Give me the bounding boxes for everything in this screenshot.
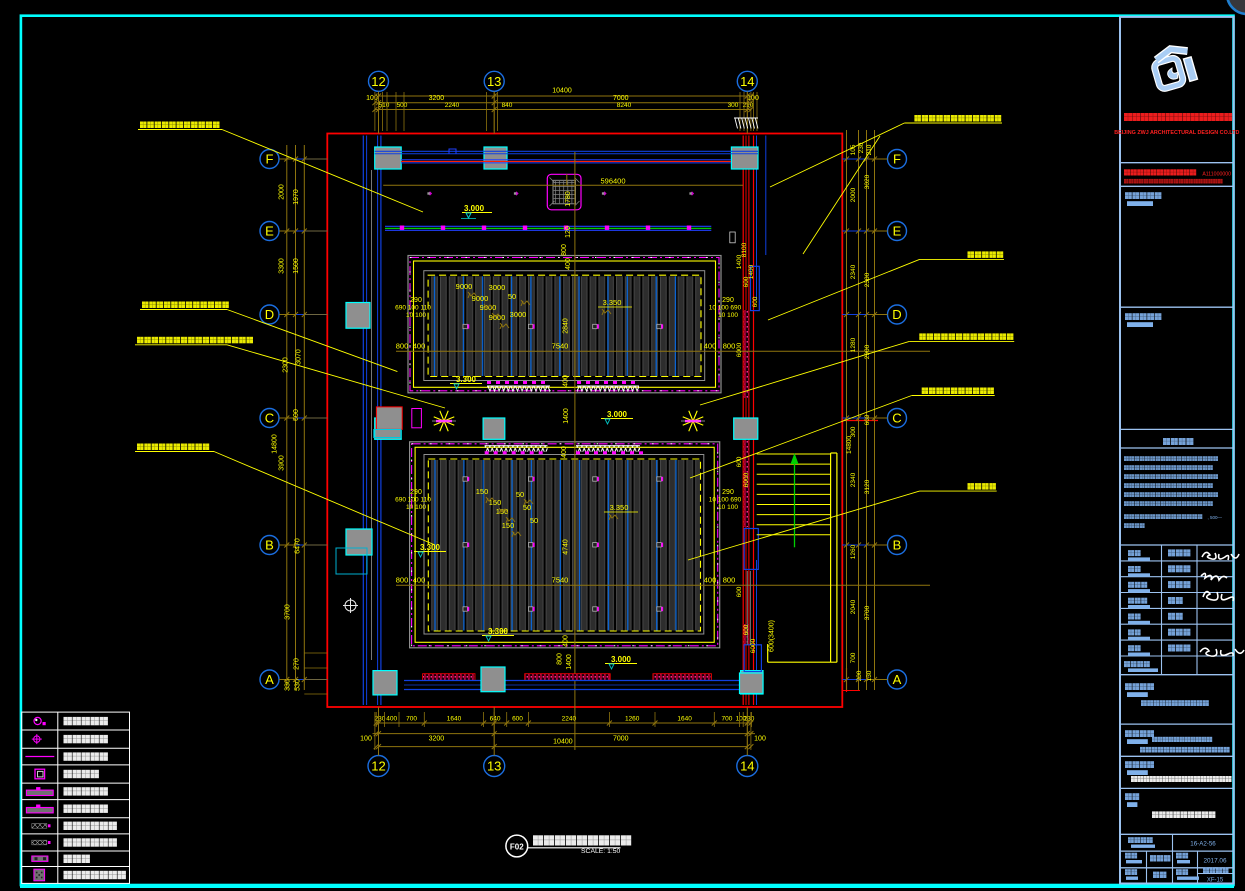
svg-text:10 100: 10 100: [406, 312, 426, 319]
svg-text:600: 600: [512, 716, 523, 723]
svg-text:8100: 8100: [741, 242, 748, 257]
svg-text:50: 50: [508, 292, 516, 301]
svg-text:3120: 3120: [864, 479, 871, 494]
svg-text:, 500—: , 500—: [1207, 515, 1222, 520]
svg-text:3.000: 3.000: [464, 204, 485, 213]
svg-text:3700: 3700: [285, 604, 292, 620]
svg-text:1400: 1400: [566, 654, 573, 670]
svg-text:14800: 14800: [846, 436, 853, 454]
svg-text:700: 700: [850, 652, 857, 663]
svg-text:9000: 9000: [456, 282, 473, 291]
svg-text:3.350: 3.350: [610, 503, 629, 512]
svg-text:1260: 1260: [850, 544, 857, 559]
svg-text:4740: 4740: [563, 539, 570, 555]
svg-text:210: 210: [866, 144, 873, 155]
svg-text:12: 12: [371, 74, 385, 89]
svg-text:2240: 2240: [445, 102, 460, 109]
svg-text:8240: 8240: [617, 102, 632, 109]
svg-text:300: 300: [850, 426, 857, 437]
svg-text:400: 400: [563, 635, 570, 647]
svg-text:100: 100: [754, 736, 766, 743]
svg-text:7540: 7540: [552, 342, 569, 351]
svg-text:1500: 1500: [293, 258, 300, 274]
svg-text:14: 14: [740, 74, 754, 89]
svg-text:400: 400: [565, 258, 572, 270]
svg-text:270: 270: [294, 658, 301, 670]
svg-text:500: 500: [397, 102, 408, 109]
svg-text:D: D: [265, 307, 274, 322]
svg-text:10 100 690: 10 100 690: [709, 497, 742, 504]
svg-text:600: 600: [752, 296, 759, 307]
svg-text:3200: 3200: [429, 736, 445, 743]
svg-text:F: F: [893, 152, 901, 167]
svg-text:6000: 6000: [743, 472, 750, 487]
svg-text:F: F: [266, 152, 274, 167]
svg-text:690 100 110: 690 100 110: [395, 305, 431, 312]
svg-text:1640: 1640: [447, 716, 462, 723]
svg-text:2900: 2900: [864, 344, 871, 359]
svg-text:596400: 596400: [601, 177, 626, 186]
svg-text:2000: 2000: [850, 187, 857, 202]
svg-text:290: 290: [410, 489, 422, 496]
svg-text:200: 200: [856, 670, 863, 681]
svg-text:7000: 7000: [613, 736, 629, 743]
svg-text:3.000: 3.000: [607, 410, 628, 419]
svg-text:690 100 110: 690 100 110: [395, 497, 431, 504]
svg-text:3300: 3300: [279, 258, 286, 274]
svg-text:2340: 2340: [850, 472, 857, 487]
svg-text:3.000: 3.000: [611, 655, 632, 664]
svg-text:6000: 6000: [736, 342, 743, 357]
svg-text:2017.06: 2017.06: [1203, 858, 1227, 865]
svg-text:3020: 3020: [864, 174, 871, 189]
svg-text:C: C: [892, 411, 901, 426]
svg-text:290: 290: [722, 489, 734, 496]
svg-text:9000: 9000: [472, 294, 489, 303]
svg-text:400: 400: [413, 342, 426, 351]
svg-text:150: 150: [502, 521, 515, 530]
svg-text:800: 800: [557, 653, 564, 665]
svg-text:3.300: 3.300: [488, 627, 509, 636]
svg-text:1780: 1780: [565, 191, 572, 207]
svg-text:16-A2-56: 16-A2-56: [1190, 841, 1216, 848]
svg-text:120: 120: [565, 226, 572, 238]
svg-text:800: 800: [723, 576, 736, 585]
svg-text:10 100: 10 100: [406, 504, 426, 511]
svg-text:600: 600: [743, 624, 750, 635]
svg-text:3.300: 3.300: [456, 375, 477, 384]
svg-text:3200: 3200: [429, 95, 445, 102]
svg-text:14800: 14800: [272, 434, 279, 454]
svg-text:2840: 2840: [563, 318, 570, 334]
svg-text:50: 50: [530, 516, 538, 525]
svg-text:6470: 6470: [295, 538, 302, 554]
svg-text:700: 700: [406, 716, 417, 723]
svg-text:800: 800: [723, 342, 736, 351]
svg-text:12: 12: [371, 759, 385, 774]
svg-text:7540: 7540: [552, 576, 569, 585]
svg-text:400: 400: [704, 342, 717, 351]
svg-text:100: 100: [360, 736, 372, 743]
svg-text:14: 14: [740, 759, 754, 774]
svg-text:800: 800: [396, 576, 409, 585]
svg-text:1640: 1640: [677, 716, 692, 723]
svg-text:A: A: [893, 672, 902, 687]
svg-text:2300: 2300: [283, 357, 290, 373]
svg-text:600: 600: [736, 586, 743, 597]
svg-text:A111000000: A111000000: [1202, 172, 1231, 178]
svg-text:SCALE: 1:50: SCALE: 1:50: [581, 848, 621, 855]
svg-text:10 100: 10 100: [718, 312, 738, 319]
svg-text:600: 600: [736, 456, 743, 467]
svg-text:1280: 1280: [850, 337, 857, 352]
svg-text:130: 130: [866, 670, 873, 681]
svg-text:1400: 1400: [563, 408, 570, 424]
svg-text:290: 290: [722, 297, 734, 304]
svg-text:400: 400: [413, 576, 426, 585]
svg-text:7000: 7000: [613, 95, 629, 102]
svg-text:3000: 3000: [489, 283, 506, 292]
svg-text:150: 150: [476, 487, 489, 496]
svg-text:A: A: [265, 672, 274, 687]
svg-text:2040: 2040: [850, 599, 857, 614]
svg-text:BEIJING ZWJ ARCHITECTURAL DESI: BEIJING ZWJ ARCHITECTURAL DESIGN CO.LTD: [1114, 130, 1239, 136]
svg-text:10 100 690: 10 100 690: [709, 305, 742, 312]
svg-text:400: 400: [563, 375, 570, 387]
svg-text:3700: 3700: [864, 605, 871, 620]
svg-text:XF-15: XF-15: [1207, 878, 1224, 884]
svg-text:F02: F02: [510, 843, 524, 852]
svg-text:3.350: 3.350: [603, 298, 622, 307]
svg-text:800: 800: [396, 342, 409, 351]
svg-text:400: 400: [561, 446, 568, 458]
svg-text:10 100: 10 100: [718, 504, 738, 511]
svg-text:700: 700: [721, 716, 732, 723]
svg-text:3.300: 3.300: [420, 543, 441, 552]
svg-text:840: 840: [502, 102, 513, 109]
svg-text:400: 400: [386, 716, 397, 723]
svg-text:600(3400): 600(3400): [769, 620, 776, 652]
svg-text:2340: 2340: [850, 264, 857, 279]
svg-text:3900: 3900: [279, 455, 286, 471]
svg-text:E: E: [893, 224, 902, 239]
svg-text:3000: 3000: [510, 310, 527, 319]
svg-text:290: 290: [410, 297, 422, 304]
svg-text:3070: 3070: [296, 349, 303, 365]
svg-text:50: 50: [516, 490, 524, 499]
svg-text:1400: 1400: [748, 264, 755, 279]
svg-text:B: B: [893, 538, 902, 553]
svg-text:2240: 2240: [562, 716, 577, 723]
svg-text:E: E: [265, 224, 274, 239]
svg-text:13: 13: [487, 759, 501, 774]
svg-text:C: C: [265, 411, 274, 426]
svg-text:300: 300: [728, 102, 739, 109]
svg-text:13: 13: [487, 74, 501, 89]
svg-text:10400: 10400: [553, 739, 573, 746]
svg-text:2000: 2000: [279, 184, 286, 200]
svg-text:B: B: [265, 538, 274, 553]
svg-text:800: 800: [561, 244, 568, 256]
svg-text:400: 400: [704, 576, 717, 585]
svg-text:D: D: [892, 307, 901, 322]
svg-text:1260: 1260: [625, 716, 640, 723]
svg-text:1970: 1970: [293, 189, 300, 205]
svg-text:530: 530: [295, 679, 302, 691]
svg-text:6000: 6000: [750, 638, 757, 653]
svg-text:10400: 10400: [552, 88, 572, 95]
